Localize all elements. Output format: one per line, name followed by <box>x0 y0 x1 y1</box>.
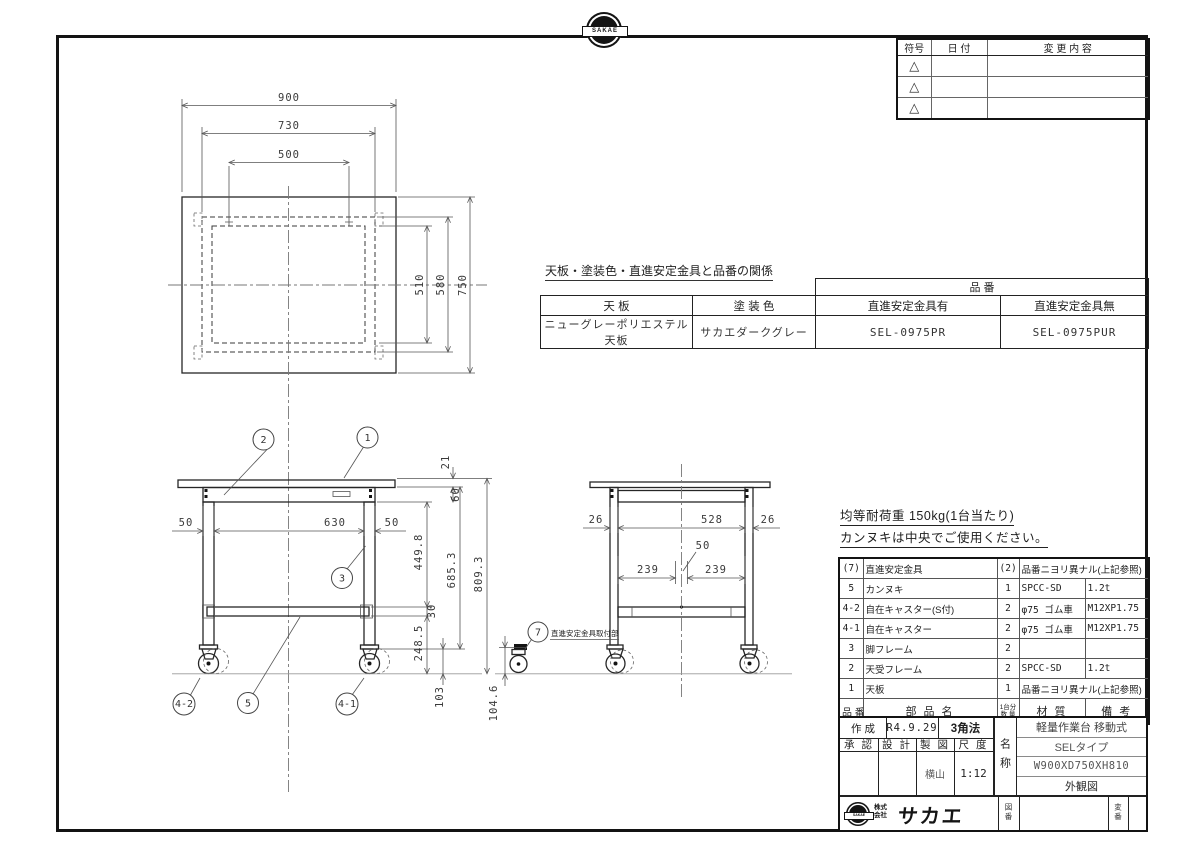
projection-method: 3角法 <box>938 718 993 738</box>
relation-part-no-header: 品 番 <box>816 279 1149 296</box>
relation-paint-value: サカエダークグレー <box>693 316 816 349</box>
part-no: 4-1 <box>839 619 863 639</box>
part-qty: 1 <box>997 579 1019 599</box>
part-material: φ75 ゴム車 <box>1019 599 1085 619</box>
revision-col-date: 日 付 <box>931 39 987 56</box>
scale-value: 1:12 <box>954 751 993 795</box>
part-no: 5 <box>839 579 863 599</box>
parts-row: 3 脚フレーム 2 <box>839 639 1149 659</box>
part-name: 自在キャスター <box>863 619 997 639</box>
note-load-capacity: 均等耐荷重 150kg(1台当たり) <box>840 505 1014 526</box>
parts-row: 1 天板 1 品番ニヨリ異ナル(上記参照) <box>839 679 1149 699</box>
revision-row: △ <box>897 98 1149 120</box>
part-qty: 2 <box>997 659 1019 679</box>
product-type: SELタイプ <box>1017 738 1146 758</box>
company-type: 株式 会社 <box>874 804 887 821</box>
relation-col-with-stabilizer: 直進安定金具有 <box>816 296 1001 316</box>
drawing-type: 外観図 <box>1017 777 1146 796</box>
part-qty: 1 <box>997 679 1019 699</box>
draft-value: 横山 <box>916 751 954 795</box>
drawing-no-label: 図番 <box>998 795 1019 830</box>
parts-row: 2 天受フレーム 2 SPCC-SD 1.2t <box>839 659 1149 679</box>
title-block: 作 成 R4.9.29 3角法 承 認 設 計 製 図 尺 度 横山 1:12 … <box>838 716 1148 832</box>
relation-top-value: ニューグレーポリエステル天板 <box>541 316 693 349</box>
company-type-line2: 会社 <box>874 812 887 820</box>
revision-change-cell <box>987 77 1149 98</box>
draft-label: 製 図 <box>916 738 954 751</box>
relation-col-without-stabilizer: 直進安定金具無 <box>1001 296 1149 316</box>
part-name: 天受フレーム <box>863 659 997 679</box>
part-qty: 2 <box>997 619 1019 639</box>
sakae-logo-small: SAKAE <box>846 802 870 826</box>
part-qty: 2 <box>997 599 1019 619</box>
relation-col-paint: 塗 装 色 <box>693 296 816 316</box>
part-material: 品番ニヨリ異ナル(上記参照) <box>1019 558 1149 579</box>
part-material <box>1019 639 1085 659</box>
scale-label: 尺 度 <box>954 738 993 751</box>
revision-change-cell <box>987 56 1149 77</box>
part-name: 天板 <box>863 679 997 699</box>
part-no: 2 <box>839 659 863 679</box>
note-kannuki: カンヌキは中央でご使用ください。 <box>840 527 1048 548</box>
product-title: 軽量作業台 移動式 <box>1017 718 1146 738</box>
part-material: φ75 ゴム車 <box>1019 619 1085 639</box>
sakae-logo-top: SAKAE <box>586 12 622 48</box>
part-no: 1 <box>839 679 863 699</box>
name-label: 名称 <box>993 718 1016 795</box>
part-material: 品番ニヨリ異ナル(上記参照) <box>1019 679 1149 699</box>
part-name: 自在キャスター(S付) <box>863 599 997 619</box>
company-name: サカエ <box>896 800 965 829</box>
part-name: カンヌキ <box>863 579 997 599</box>
parts-row: 4-2 自在キャスター(S付) 2 φ75 ゴム車 M12XP1.75 <box>839 599 1149 619</box>
part-remark: 1.2t <box>1085 579 1149 599</box>
relation-part-no-with: SEL-0975PR <box>816 316 1001 349</box>
part-remark: M12XP1.75 <box>1085 619 1149 639</box>
revision-col-change: 変 更 内 容 <box>987 39 1149 56</box>
approved-label: 承 認 <box>840 738 878 751</box>
drawing-no-value <box>1019 795 1108 830</box>
part-no: 4-2 <box>839 599 863 619</box>
revision-col-symbol: 符号 <box>897 39 931 56</box>
parts-row: (7) 直進安定金具 (2) 品番ニヨリ異ナル(上記参照) <box>839 558 1149 579</box>
part-no: (7) <box>839 558 863 579</box>
part-remark: 1.2t <box>1085 659 1149 679</box>
part-material: SPCC-SD <box>1019 579 1085 599</box>
revision-table: 符号 日 付 変 更 内 容 △ △ △ <box>896 38 1150 120</box>
revision-symbol-icon: △ <box>897 77 931 98</box>
part-qty: (2) <box>997 558 1019 579</box>
parts-header-qty-line1: 1台分 <box>1000 704 1017 711</box>
sakae-logo-text: SAKAE <box>582 26 628 37</box>
created-label: 作 成 <box>840 718 886 738</box>
revision-symbol-icon: △ <box>897 56 931 77</box>
sakae-logo-text: SAKAE <box>844 812 874 820</box>
parts-row: 5 カンヌキ 1 SPCC-SD 1.2t <box>839 579 1149 599</box>
revision-date-cell <box>931 77 987 98</box>
relation-part-no-without: SEL-0975PUR <box>1001 316 1149 349</box>
part-qty: 2 <box>997 639 1019 659</box>
parts-table: (7) 直進安定金具 (2) 品番ニヨリ異ナル(上記参照) 5 カンヌキ 1 S… <box>838 557 1150 725</box>
part-no: 3 <box>839 639 863 659</box>
revision-row: △ <box>897 77 1149 98</box>
product-name-block: 軽量作業台 移動式 SELタイプ W900XD750XH810 外観図 <box>1017 718 1146 795</box>
parts-row: 4-1 自在キャスター 2 φ75 ゴム車 M12XP1.75 <box>839 619 1149 639</box>
part-name: 脚フレーム <box>863 639 997 659</box>
design-label: 設 計 <box>878 738 916 751</box>
revision-date-cell <box>931 98 987 120</box>
part-material: SPCC-SD <box>1019 659 1085 679</box>
part-remark <box>1085 639 1149 659</box>
part-remark: M12XP1.75 <box>1085 599 1149 619</box>
drawing-sheet: 900 730 500 510 580 750 <box>0 0 1200 848</box>
product-size: W900XD750XH810 <box>1017 757 1146 777</box>
revision-row: △ <box>897 56 1149 77</box>
relation-void-cell <box>541 279 816 296</box>
created-date: R4.9.29 <box>886 718 938 738</box>
relation-col-top: 天 板 <box>541 296 693 316</box>
revision-symbol-icon: △ <box>897 98 931 120</box>
revision-change-cell <box>987 98 1149 120</box>
relation-table: 品 番 天 板 塗 装 色 直進安定金具有 直進安定金具無 ニューグレーポリエス… <box>540 278 1149 349</box>
rev-no-label: 変番 <box>1108 795 1128 830</box>
revision-date-cell <box>931 56 987 77</box>
part-name: 直進安定金具 <box>863 558 997 579</box>
rev-no-value <box>1128 795 1146 830</box>
